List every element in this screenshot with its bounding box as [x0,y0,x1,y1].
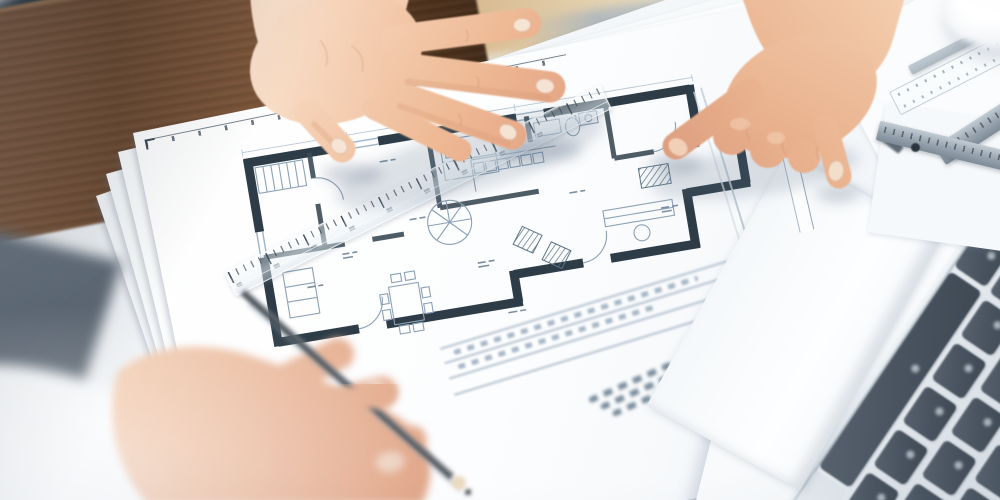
hands-layer [0,0,1000,500]
pencil-hand-group [0,228,471,500]
photo-scene: Two colleagues' hands over an architectu… [0,0,1000,500]
pencil-graphite-tip [465,489,471,495]
pencil-wood-tip [452,476,466,490]
splayed-hand [233,0,555,157]
pointing-hand [665,0,908,182]
